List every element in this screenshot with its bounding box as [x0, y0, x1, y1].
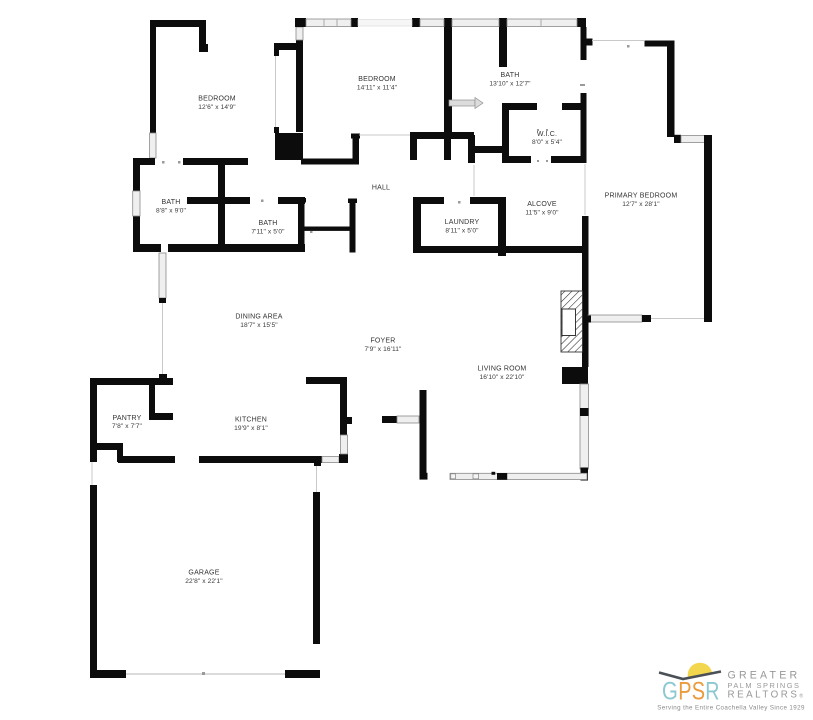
svg-text:11'5" x 9'0": 11'5" x 9'0" — [525, 209, 559, 216]
svg-text:Serving the Entire Coachella V: Serving the Entire Coachella Valley Sinc… — [657, 705, 805, 712]
svg-text:LIVING ROOM: LIVING ROOM — [478, 366, 527, 373]
svg-text:KITCHEN: KITCHEN — [235, 417, 267, 424]
svg-text:BEDROOM: BEDROOM — [198, 96, 236, 103]
svg-text:PRIMARY BEDROOM: PRIMARY BEDROOM — [605, 193, 678, 200]
svg-text:FOYER: FOYER — [370, 338, 395, 345]
svg-text:W.I.C.: W.I.C. — [537, 131, 557, 138]
svg-text:16'10" x 22'10": 16'10" x 22'10" — [480, 374, 526, 381]
svg-text:BATH: BATH — [259, 220, 278, 227]
svg-text:REALTORS®: REALTORS® — [728, 690, 806, 701]
svg-text:LAUNDRY: LAUNDRY — [445, 219, 480, 226]
svg-text:P: P — [678, 679, 691, 706]
svg-text:7'9" x 16'11": 7'9" x 16'11" — [365, 346, 403, 353]
svg-text:8'0" x 5'4": 8'0" x 5'4" — [532, 139, 562, 146]
svg-text:14'11" x 11'4": 14'11" x 11'4" — [357, 84, 398, 91]
svg-text:ALCOVE: ALCOVE — [527, 201, 557, 208]
svg-text:BEDROOM: BEDROOM — [358, 76, 396, 83]
svg-text:R: R — [705, 679, 719, 706]
svg-text:8'11" x 5'0": 8'11" x 5'0" — [445, 227, 479, 234]
svg-text:18'7" x 15'5": 18'7" x 15'5" — [240, 322, 278, 329]
svg-text:BATH: BATH — [162, 199, 181, 206]
svg-text:13'10" x 12'7": 13'10" x 12'7" — [489, 80, 531, 87]
svg-text:12'6" x 14'9": 12'6" x 14'9" — [198, 104, 236, 111]
svg-text:22'8" x 22'1": 22'8" x 22'1" — [185, 578, 223, 585]
svg-text:G: G — [662, 679, 678, 706]
svg-text:8'8" x 9'0": 8'8" x 9'0" — [156, 207, 186, 214]
svg-text:19'9" x 8'1": 19'9" x 8'1" — [234, 425, 268, 432]
svg-text:BATH: BATH — [501, 72, 520, 79]
svg-text:12'7" x 28'1": 12'7" x 28'1" — [622, 201, 660, 208]
svg-text:DINING AREA: DINING AREA — [235, 314, 282, 321]
svg-text:GREATER: GREATER — [728, 670, 801, 682]
svg-text:PANTRY: PANTRY — [113, 415, 142, 422]
svg-text:7'8" x 7'7": 7'8" x 7'7" — [112, 423, 142, 430]
svg-text:7'11" x 5'0": 7'11" x 5'0" — [251, 228, 285, 235]
svg-text:HALL: HALL — [372, 185, 390, 192]
svg-text:S: S — [692, 679, 705, 706]
svg-text:GARAGE: GARAGE — [188, 570, 219, 577]
